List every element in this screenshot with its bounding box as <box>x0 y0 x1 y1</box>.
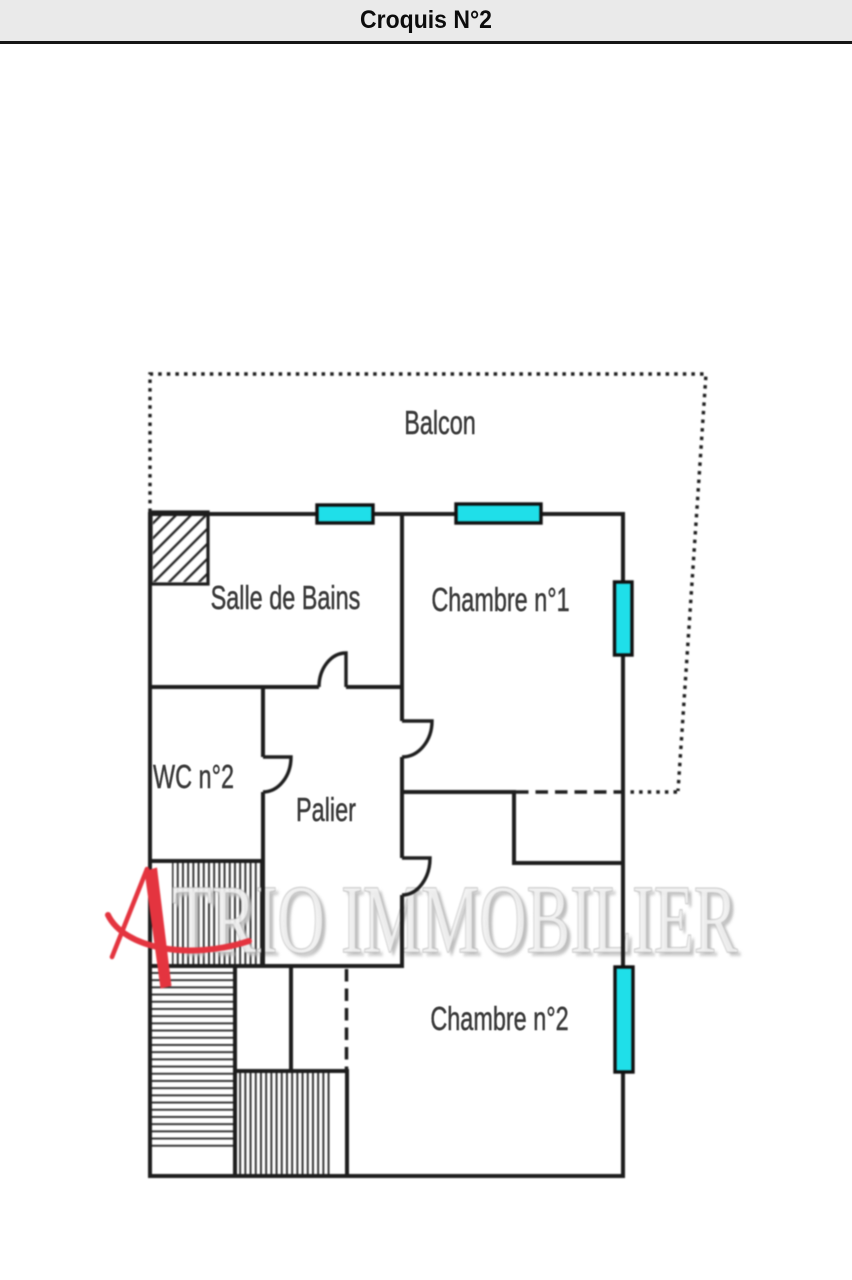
svg-text:Chambre n°1: Chambre n°1 <box>431 582 569 619</box>
svg-text:Chambre n°2: Chambre n°2 <box>430 1001 568 1038</box>
svg-text:Salle de Bains: Salle de Bains <box>211 580 361 617</box>
svg-text:WC n°2: WC n°2 <box>153 759 234 796</box>
svg-text:Balcon: Balcon <box>404 405 476 442</box>
svg-text:TRIO IMMOBILIER: TRIO IMMOBILIER <box>172 865 738 973</box>
svg-text:Palier: Palier <box>296 792 356 829</box>
